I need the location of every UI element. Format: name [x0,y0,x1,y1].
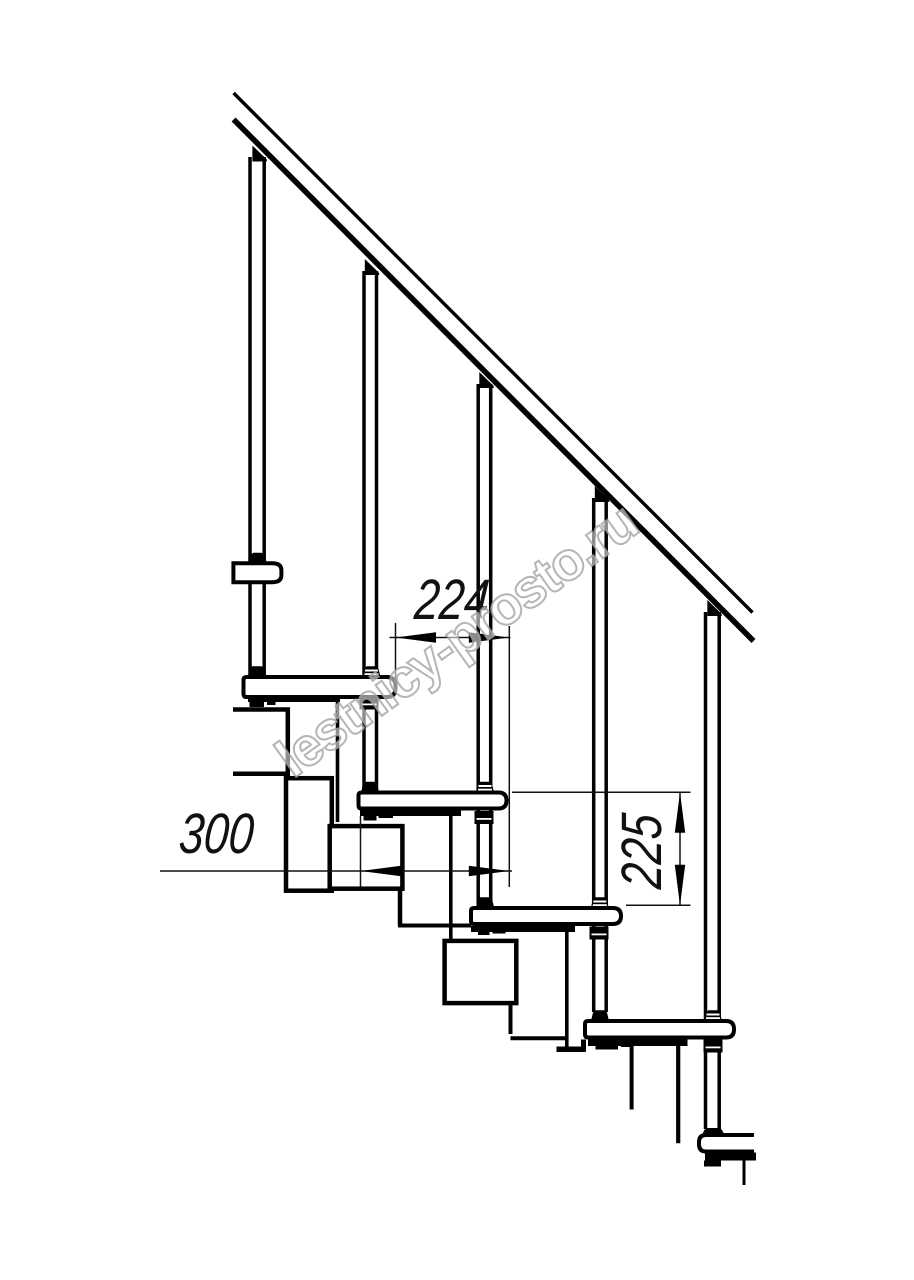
svg-text:300: 300 [177,802,257,865]
svg-text:225: 225 [610,811,673,892]
